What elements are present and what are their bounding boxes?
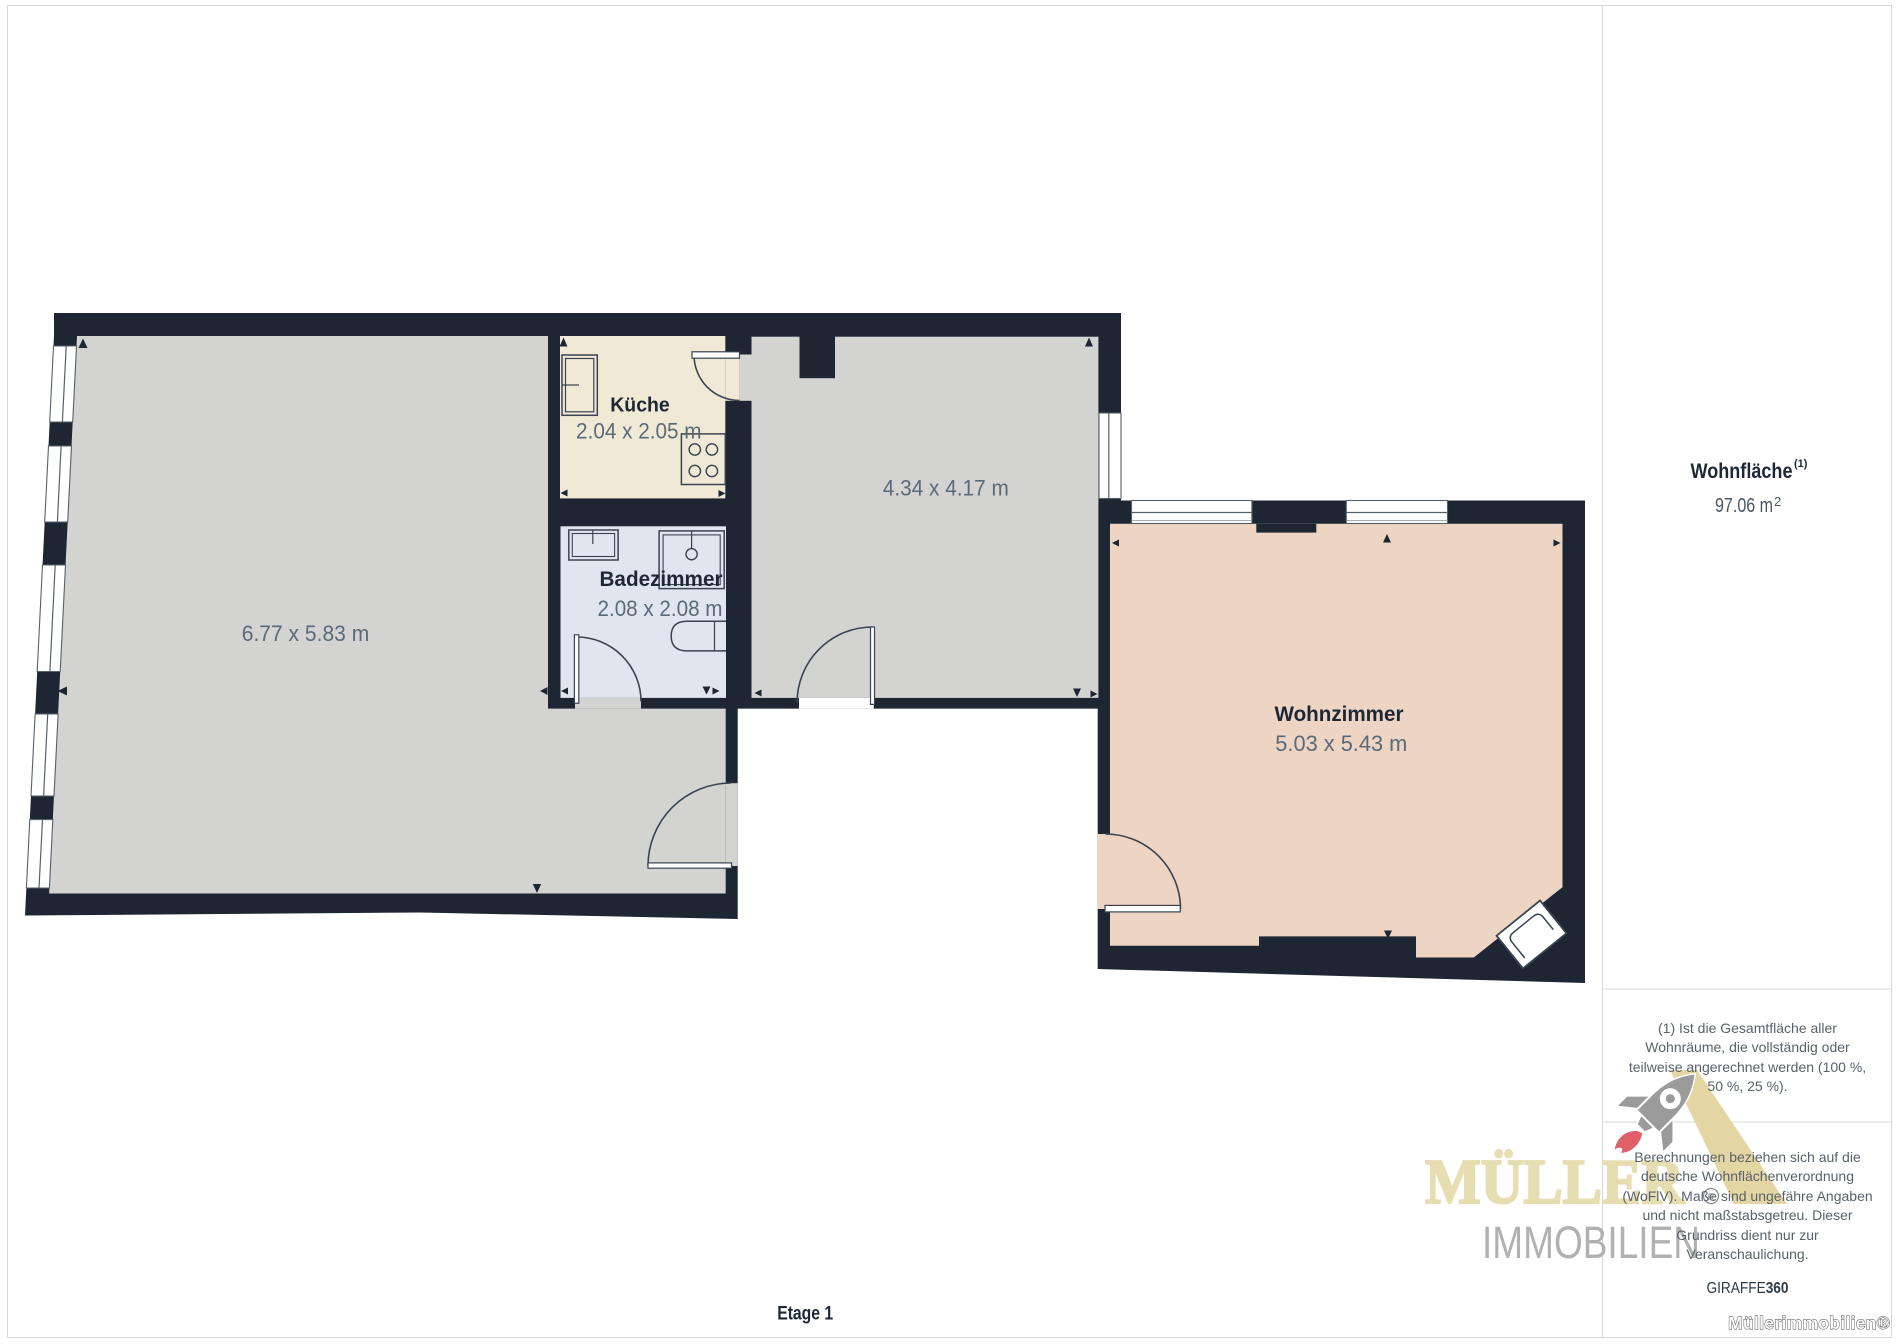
svg-text:und nicht maßstabsgetreu. Dies: und nicht maßstabsgetreu. Dieser (1642, 1207, 1852, 1223)
svg-text:2.04 x 2.05 m: 2.04 x 2.05 m (576, 419, 702, 444)
svg-text:GIRAFFE360: GIRAFFE360 (1707, 1280, 1789, 1297)
svg-text:2: 2 (1774, 494, 1781, 509)
svg-text:2.08 x 2.08 m: 2.08 x 2.08 m (598, 596, 723, 621)
svg-text:deutsche Wohnflächenverordnung: deutsche Wohnflächenverordnung (1641, 1168, 1854, 1184)
svg-text:Grundriss dient nur zur: Grundriss dient nur zur (1676, 1227, 1819, 1243)
svg-text:(1): (1) (1794, 458, 1808, 470)
svg-text:Berechnungen beziehen sich auf: Berechnungen beziehen sich auf die (1634, 1149, 1861, 1165)
svg-text:IMMOBILIEN: IMMOBILIEN (1482, 1217, 1700, 1268)
svg-text:4.34 x 4.17 m: 4.34 x 4.17 m (883, 476, 1009, 501)
svg-text:Etage 1: Etage 1 (777, 1304, 833, 1325)
svg-text:(WoFlV). Maße sind ungefähre A: (WoFlV). Maße sind ungefähre Angaben (1622, 1188, 1872, 1204)
svg-text:(1) Ist die Gesamtfläche aller: (1) Ist die Gesamtfläche aller (1658, 1020, 1837, 1036)
svg-text:Veranschaulichung.: Veranschaulichung. (1686, 1246, 1808, 1262)
svg-text:Badezimmer: Badezimmer (600, 568, 723, 591)
svg-text:6.77 x 5.83 m: 6.77 x 5.83 m (242, 621, 370, 646)
svg-text:Wohnzimmer: Wohnzimmer (1275, 703, 1404, 726)
svg-text:Wohnfläche: Wohnfläche (1691, 460, 1793, 483)
svg-text:Wohnräume, die vollständig ode: Wohnräume, die vollständig oder (1645, 1039, 1850, 1055)
svg-text:50 %, 25 %).: 50 %, 25 %). (1707, 1078, 1787, 1094)
svg-text:teilweise angerechnet werden (: teilweise angerechnet werden (100 %, (1629, 1059, 1866, 1075)
svg-text:5.03 x 5.43 m: 5.03 x 5.43 m (1275, 731, 1407, 756)
svg-text:Küche: Küche (610, 395, 670, 417)
svg-text:97.06 m: 97.06 m (1715, 495, 1773, 517)
svg-text:Müllerimmobilien®: Müllerimmobilien® (1728, 1313, 1890, 1333)
